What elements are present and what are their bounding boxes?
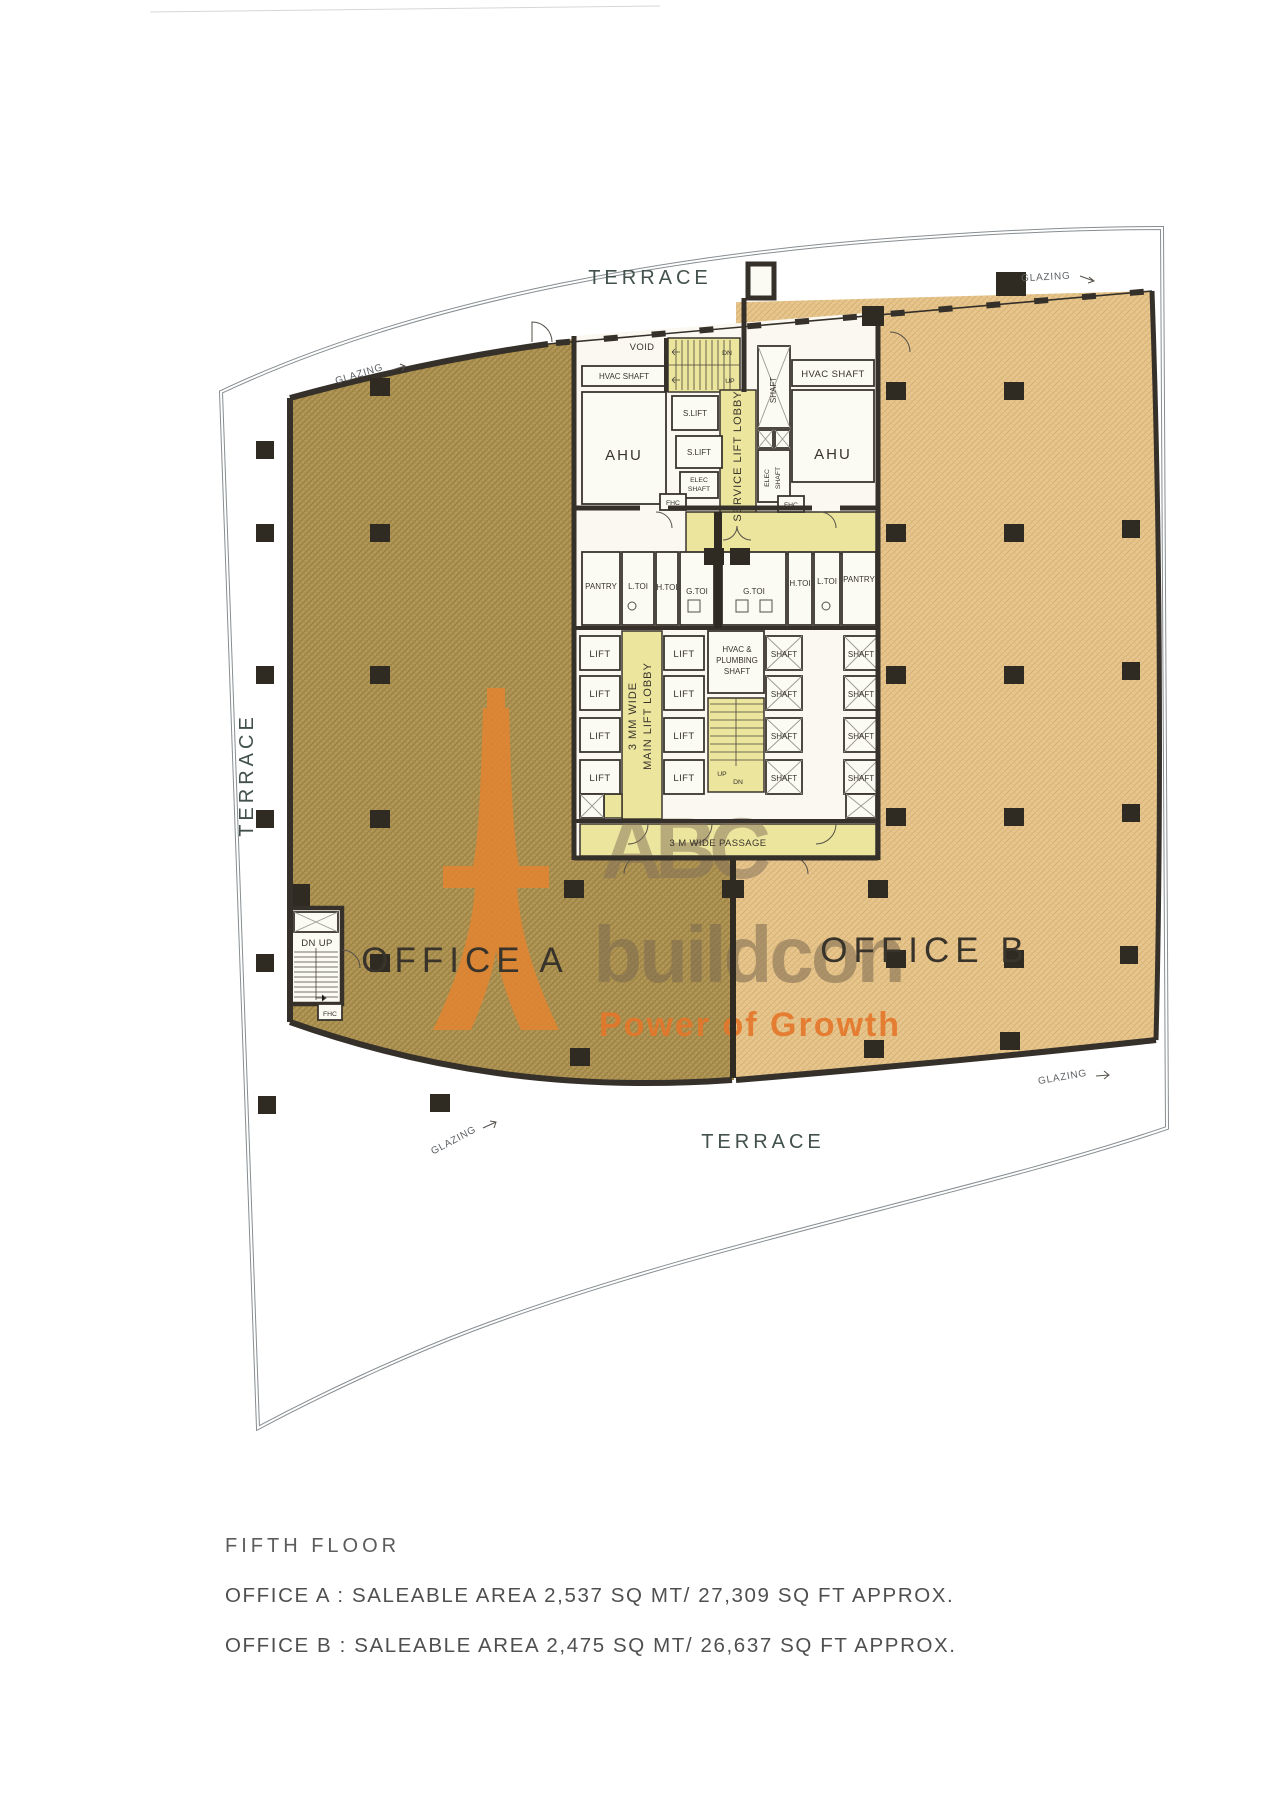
elec-right-label2: SHAFT: [775, 467, 782, 489]
central-stair-dn: DN: [733, 779, 743, 786]
ahu-right-room: [792, 390, 874, 482]
lift-label: LIFT: [673, 731, 694, 742]
s-lift-2-label: S.LIFT: [687, 448, 711, 457]
main-lift-lobby-line2: MAIN LIFT LOBBY: [642, 662, 654, 770]
glazing-bottom-left: GLAZING: [429, 1124, 478, 1157]
toilet-ltoi-left: L.TOI: [628, 582, 648, 591]
toilet-ltoi-right: L.TOI: [817, 577, 837, 586]
floor-plan-drawing: ABC buildcon Power of Growth: [0, 0, 1273, 1801]
left-stair-fhc: FHC: [323, 1011, 337, 1018]
terrace-top-label: TERRACE: [588, 267, 712, 289]
hvac-plumbing-line3: SHAFT: [724, 667, 750, 676]
toilet-pantry-right: PANTRY: [843, 575, 875, 584]
elec-right-label: ELEC: [764, 469, 771, 487]
void-label: VOID: [630, 342, 655, 353]
passage-label: 3 M WIDE PASSAGE: [669, 838, 766, 849]
shaft-label: SHAFT: [848, 650, 874, 659]
office-a-area-line: OFFICE A : SALEABLE AREA 2,537 SQ MT/ 27…: [225, 1584, 954, 1607]
title-block: FIFTH FLOOR OFFICE A : SALEABLE AREA 2,5…: [225, 1535, 957, 1657]
lift-label: LIFT: [589, 731, 610, 742]
top-stair-dn: DN: [722, 350, 732, 357]
floor-plan-page: ABC buildcon Power of Growth: [0, 0, 1273, 1801]
toilet-htoi-left: H.TOI: [656, 583, 677, 592]
fhc-right-label: FHC: [784, 502, 798, 509]
shaft-label: SHAFT: [771, 650, 797, 659]
shaft-vert-label: SHAFT: [769, 377, 778, 403]
s-lift-1-label: S.LIFT: [683, 409, 707, 418]
toilet-htoi-right: H.TOI: [789, 579, 810, 588]
floor-title: FIFTH FLOOR: [225, 1535, 400, 1557]
hvac-shaft-right-label: HVAC SHAFT: [801, 369, 864, 380]
toilet-gtoi-right: G.TOI: [743, 587, 765, 596]
hvac-plumbing-line2: PLUMBING: [716, 656, 758, 665]
elec-left-label: ELEC: [690, 477, 708, 484]
shaft-label: SHAFT: [848, 690, 874, 699]
lift-label: LIFT: [673, 649, 694, 660]
lift-label: LIFT: [589, 689, 610, 700]
elec-shaft-right-room: [758, 450, 790, 502]
ahu-right-label: AHU: [814, 446, 852, 463]
central-stair-up: UP: [717, 771, 727, 778]
watermark-tagline: Power of Growth: [599, 1006, 901, 1044]
elec-left-label2: SHAFT: [688, 486, 710, 493]
office-b-area-line: OFFICE B : SALEABLE AREA 2,475 SQ MT/ 26…: [225, 1634, 957, 1657]
lift-label: LIFT: [589, 773, 610, 784]
service-lift-lobby-label: SERVICE LIFT LOBBY: [732, 390, 744, 521]
terrace-box: [748, 264, 774, 298]
shaft-label: SHAFT: [848, 732, 874, 741]
shaft-label: SHAFT: [771, 690, 797, 699]
office-a-label: OFFICE A: [361, 941, 568, 980]
toilet-gtoi-left: G.TOI: [686, 587, 708, 596]
fhc-left-label: FHC: [666, 500, 680, 507]
shaft-label: SHAFT: [848, 774, 874, 783]
terrace-left-label: TERRACE: [236, 713, 258, 837]
toilet-band: [582, 548, 876, 625]
lift-label: LIFT: [673, 773, 694, 784]
lift-label: LIFT: [589, 649, 610, 660]
shaft-label: SHAFT: [771, 774, 797, 783]
hvac-plumbing-line1: HVAC &: [722, 645, 752, 654]
glazing-bottom-right: GLAZING: [1037, 1068, 1088, 1087]
top-stair-up: UP: [725, 378, 735, 385]
ahu-left-label: AHU: [605, 447, 643, 464]
scan-artifact-line: [150, 6, 660, 12]
toilet-pantry-left: PANTRY: [585, 582, 617, 591]
glazing-top-right: GLAZING: [1021, 271, 1071, 285]
lift-label: LIFT: [673, 689, 694, 700]
hvac-shaft-left-label: HVAC SHAFT: [599, 372, 649, 381]
office-b-label: OFFICE B: [820, 931, 1029, 970]
main-lift-lobby-line1: 3 MM WIDE: [627, 682, 639, 750]
left-stair-dn-up: DN UP: [301, 938, 333, 949]
terrace-bottom-label: TERRACE: [701, 1131, 825, 1153]
shaft-label: SHAFT: [771, 732, 797, 741]
